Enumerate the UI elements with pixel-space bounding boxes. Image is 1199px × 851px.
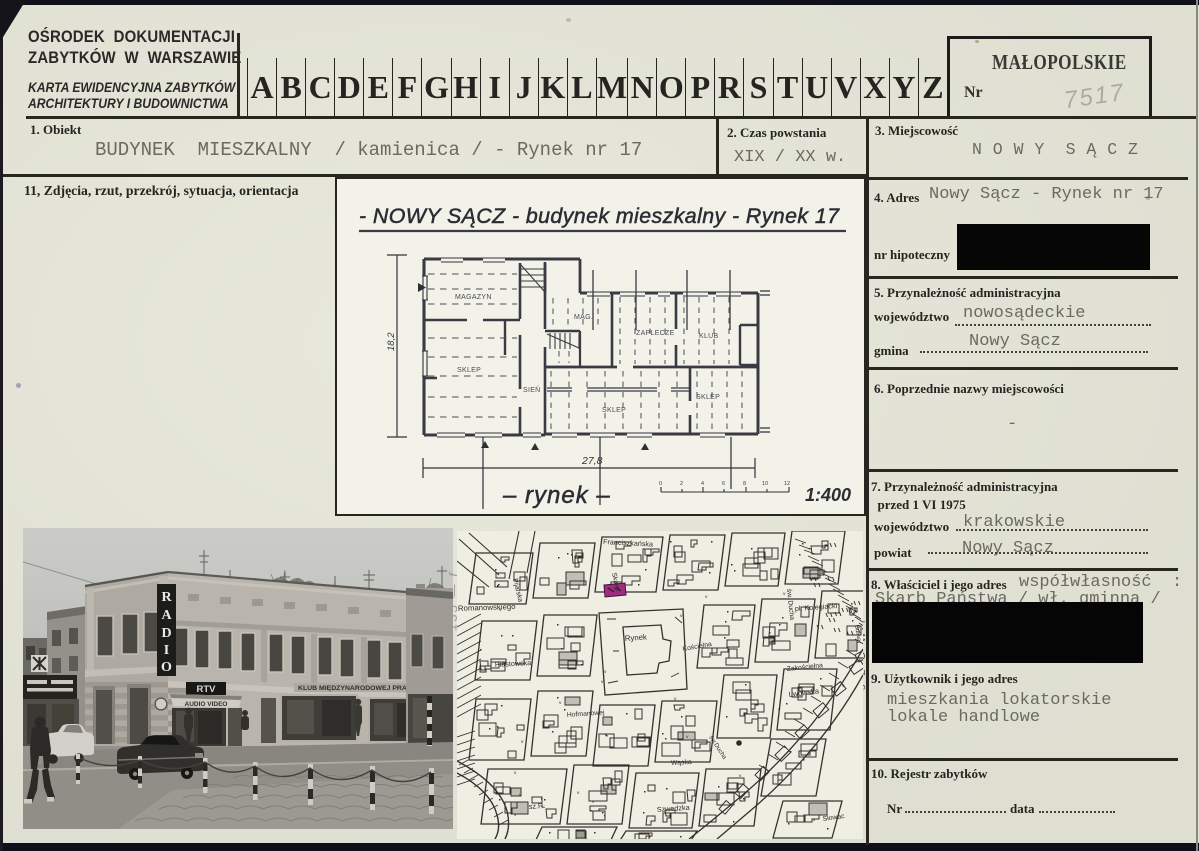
- svg-text:I: I: [164, 643, 169, 658]
- svg-text:D: D: [161, 626, 171, 641]
- svg-text:Zakościelna: Zakościelna: [786, 662, 823, 673]
- svg-text:SKLEP: SKLEP: [457, 367, 481, 374]
- svg-text:v: v: [519, 793, 522, 798]
- svg-text:Pijarska: Pijarska: [511, 578, 524, 603]
- svg-text:2: 2: [680, 481, 683, 487]
- svg-text:Rynek: Rynek: [625, 632, 648, 643]
- svg-text:10: 10: [762, 481, 768, 487]
- svg-text:Piastowska: Piastowska: [495, 658, 532, 669]
- svg-text:v: v: [514, 771, 517, 776]
- svg-text:4: 4: [701, 481, 704, 487]
- svg-text:– rynek –: – rynek –: [502, 482, 611, 509]
- svg-text:12: 12: [784, 481, 790, 487]
- svg-text:MAGAZYN: MAGAZYN: [455, 294, 492, 301]
- svg-text:v: v: [680, 614, 683, 619]
- svg-text:27,8: 27,8: [581, 455, 603, 467]
- svg-text:18,2: 18,2: [386, 332, 397, 351]
- svg-text:R: R: [161, 590, 172, 605]
- svg-text:6: 6: [722, 481, 725, 487]
- svg-text:Kościelna: Kościelna: [682, 641, 712, 653]
- svg-text:ZAPLECZE: ZAPLECZE: [636, 330, 675, 337]
- svg-text:Wąska: Wąska: [671, 759, 692, 767]
- svg-text:O: O: [161, 660, 172, 675]
- svg-text:0: 0: [659, 481, 662, 487]
- svg-text:AUDIO VIDEO: AUDIO VIDEO: [185, 701, 228, 708]
- svg-text:v: v: [705, 595, 708, 600]
- svg-text:8: 8: [743, 481, 746, 487]
- svg-text:MAG.: MAG.: [574, 314, 593, 321]
- svg-text:v: v: [604, 670, 607, 675]
- svg-text:Romanowskiego: Romanowskiego: [458, 602, 517, 613]
- svg-text:KLUB MIĘDZYNARODOWEJ PRASY: KLUB MIĘDZYNARODOWEJ PRASY: [298, 685, 416, 692]
- svg-text:Hofmanowej: Hofmanowej: [567, 709, 606, 719]
- svg-text:KLUB: KLUB: [699, 333, 719, 340]
- svg-text:v: v: [577, 791, 580, 796]
- svg-text:Szwedzka: Szwedzka: [657, 803, 690, 814]
- svg-text:- NOWY SĄCZ - budynek mieszkal: - NOWY SĄCZ - budynek mieszkalny - Rynek…: [359, 204, 840, 228]
- svg-text:1:400: 1:400: [805, 485, 851, 505]
- svg-text:Franciszkańska: Franciszkańska: [603, 537, 653, 549]
- svg-text:v: v: [521, 740, 524, 745]
- svg-text:SKLEP: SKLEP: [602, 407, 626, 414]
- svg-text:SKLEP: SKLEP: [696, 394, 720, 401]
- svg-text:RTV: RTV: [197, 684, 217, 695]
- svg-text:v: v: [778, 708, 781, 713]
- svg-text:v: v: [559, 701, 562, 706]
- svg-text:A: A: [161, 608, 172, 623]
- svg-text:SIEŃ: SIEŃ: [523, 385, 541, 394]
- svg-text:pl. Kolegiacki: pl. Kolegiacki: [795, 601, 838, 613]
